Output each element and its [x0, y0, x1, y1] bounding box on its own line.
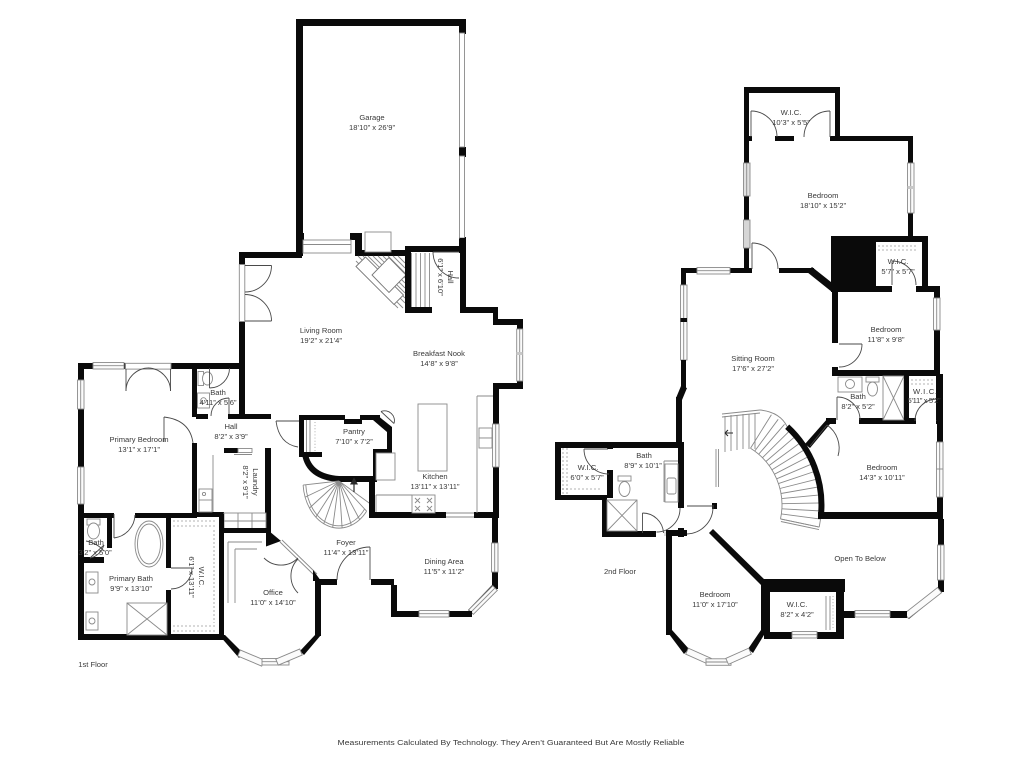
svg-text:6’0” x 5’7”: 6’0” x 5’7”: [570, 473, 604, 482]
svg-text:8’2” x 4’2”: 8’2” x 4’2”: [780, 610, 814, 619]
svg-text:13’1” x 17’1”: 13’1” x 17’1”: [118, 445, 160, 454]
svg-text:11’0” x 17’10”: 11’0” x 17’10”: [692, 600, 738, 609]
svg-text:Hall: Hall: [224, 422, 237, 431]
svg-text:Office: Office: [263, 588, 283, 597]
svg-text:Foyer: Foyer: [336, 538, 356, 547]
svg-text:8’2” x 5’2”: 8’2” x 5’2”: [841, 402, 875, 411]
svg-text:19’2” x 21’4”: 19’2” x 21’4”: [300, 336, 342, 345]
svg-text:2nd Floor: 2nd Floor: [604, 567, 637, 576]
svg-text:7’10” x 7’2”: 7’10” x 7’2”: [335, 437, 373, 446]
svg-text:13’11” x 13’11”: 13’11” x 13’11”: [410, 482, 460, 491]
svg-text:Bedroom: Bedroom: [808, 191, 839, 200]
svg-text:Hall: Hall: [446, 270, 455, 283]
svg-text:W.I.C.: W.I.C.: [197, 567, 206, 588]
svg-text:Measurements Calculated By Tec: Measurements Calculated By Technology. T…: [338, 738, 685, 747]
svg-text:8’2” x 3’9”: 8’2” x 3’9”: [214, 432, 248, 441]
svg-text:14’3” x 10’11”: 14’3” x 10’11”: [859, 473, 905, 482]
svg-text:Laundry: Laundry: [251, 468, 260, 496]
svg-text:8’2” x 9’1”: 8’2” x 9’1”: [241, 465, 250, 499]
svg-text:8’9” x 10’1”: 8’9” x 10’1”: [624, 461, 662, 470]
svg-text:Bedroom: Bedroom: [871, 325, 902, 334]
svg-text:18’10” x 15’2”: 18’10” x 15’2”: [800, 201, 846, 210]
svg-text:11’8” x 9’8”: 11’8” x 9’8”: [867, 335, 904, 344]
svg-text:11’5” x 11’2”: 11’5” x 11’2”: [424, 567, 465, 576]
svg-text:4’11” x 5’6”: 4’11” x 5’6”: [199, 398, 236, 407]
svg-text:Pantry: Pantry: [343, 427, 365, 436]
svg-text:W.I.C.: W.I.C.: [913, 387, 937, 396]
svg-text:6’1” x 6’10”: 6’1” x 6’10”: [436, 258, 445, 296]
svg-text:Garage: Garage: [359, 113, 384, 122]
svg-text:Dining Area: Dining Area: [424, 557, 464, 566]
svg-text:W.I.C.: W.I.C.: [781, 108, 802, 117]
svg-text:W.I.C.: W.I.C.: [578, 463, 599, 472]
svg-text:1st Floor: 1st Floor: [78, 660, 108, 669]
svg-text:Primary Bedroom: Primary Bedroom: [109, 435, 168, 444]
svg-text:5’7” x 5’7”: 5’7” x 5’7”: [881, 267, 915, 276]
svg-text:W.I.C.: W.I.C.: [888, 257, 909, 266]
svg-text:9’9” x 13’10”: 9’9” x 13’10”: [110, 584, 152, 593]
svg-text:Sitting Room: Sitting Room: [731, 354, 774, 363]
svg-text:Bath: Bath: [850, 392, 866, 401]
svg-text:Primary Bath: Primary Bath: [109, 574, 153, 583]
svg-text:Bedroom: Bedroom: [867, 463, 898, 472]
svg-text:3’2” x 5’0”: 3’2” x 5’0”: [78, 548, 112, 557]
svg-text:Open To Below: Open To Below: [834, 554, 886, 563]
svg-text:Kitchen: Kitchen: [422, 472, 447, 481]
svg-text:Bath: Bath: [636, 451, 652, 460]
svg-text:Breakfast Nook: Breakfast Nook: [413, 349, 465, 358]
svg-text:17’6” x 27’2”: 17’6” x 27’2”: [732, 364, 774, 373]
svg-text:11’0” x 14’10”: 11’0” x 14’10”: [250, 598, 296, 607]
svg-text:18’10” x 26’9”: 18’10” x 26’9”: [349, 123, 395, 132]
svg-text:Bath: Bath: [88, 538, 104, 547]
svg-text:Living Room: Living Room: [300, 326, 342, 335]
svg-text:5’11” x 5’2”: 5’11” x 5’2”: [908, 396, 941, 405]
svg-text:Bedroom: Bedroom: [700, 590, 731, 599]
svg-text:10’3” x 5’5”: 10’3” x 5’5”: [772, 118, 810, 127]
svg-text:14’8” x 9’8”: 14’8” x 9’8”: [420, 359, 458, 368]
svg-text:11’4” x 13’11”: 11’4” x 13’11”: [324, 548, 369, 557]
svg-text:Bath: Bath: [210, 388, 226, 397]
svg-text:W.I.C.: W.I.C.: [787, 600, 808, 609]
svg-text:6’1” x 13’11”: 6’1” x 13’11”: [187, 556, 196, 598]
